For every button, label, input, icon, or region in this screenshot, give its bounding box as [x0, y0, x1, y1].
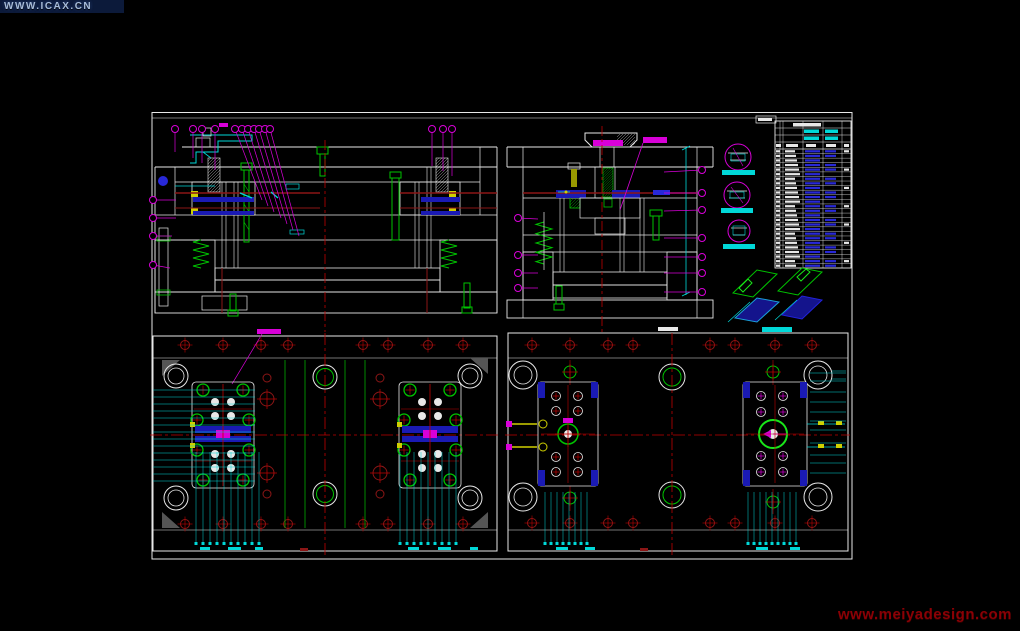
- detail-circles: [721, 144, 755, 249]
- plan-view-right: [505, 333, 850, 556]
- iso-thumbnails: [728, 268, 822, 332]
- meiyadesign-watermark: www.meiyadesign.com: [838, 606, 1012, 623]
- plan-view-left: [150, 333, 500, 558]
- bom-table: [756, 116, 851, 268]
- cad-drawing-canvas: [0, 0, 1020, 631]
- section-view-left: [150, 123, 498, 334]
- icax-watermark: WWW.ICAX.CN: [0, 0, 124, 13]
- section-view-right: [507, 126, 713, 332]
- cad-screenshot: WWW.ICAX.CN www.meiyadesign.com: [0, 0, 1020, 631]
